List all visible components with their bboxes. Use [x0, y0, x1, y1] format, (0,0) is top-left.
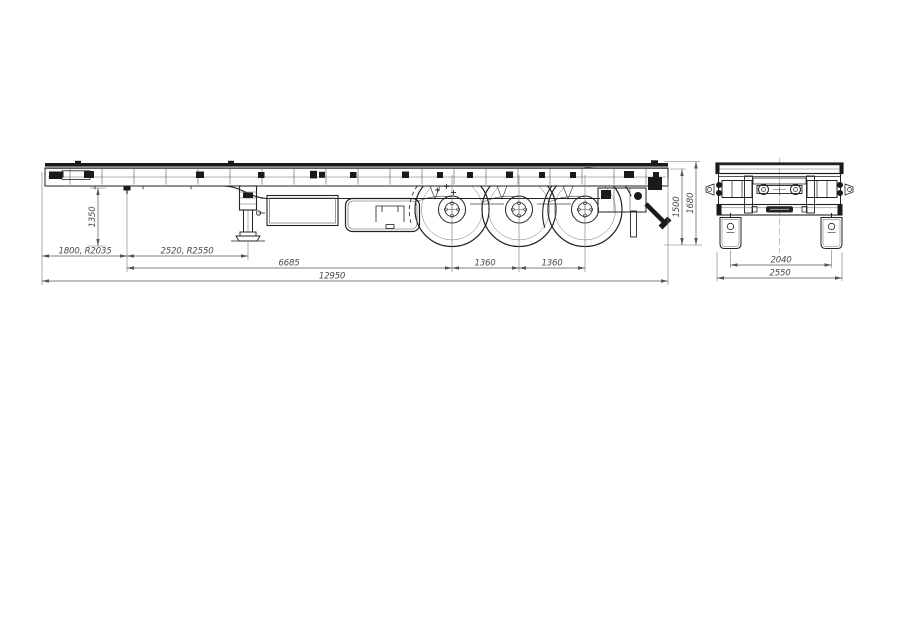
- mudflap-right: [821, 213, 842, 249]
- dimension-label: 1680: [686, 192, 696, 214]
- landing-gear: [231, 186, 265, 241]
- dimension-label: 2550: [769, 269, 791, 279]
- side-view: [45, 160, 670, 246]
- dimension-label: 2040: [770, 256, 792, 266]
- dimension: 6685: [127, 259, 452, 270]
- front-marker: [49, 172, 62, 180]
- drawing-canvas: 1800, R20352520, R2550668513601360129501…: [0, 0, 900, 636]
- dimension-label: 1500: [672, 196, 682, 218]
- mudflap-logo: [828, 223, 834, 229]
- dimension: 1360: [452, 259, 519, 270]
- dimension-label: 12950: [319, 272, 346, 282]
- toolbox-1: [267, 196, 338, 226]
- deck-frame: [45, 160, 668, 198]
- rear-taillight-right: [807, 181, 853, 198]
- dimension: 2520, R2550: [127, 247, 248, 258]
- dimension-label: 1350: [88, 206, 98, 228]
- dimension: 1500: [672, 169, 684, 245]
- underrun-bar: [646, 204, 666, 224]
- dimension-label: 2520, R2550: [161, 247, 215, 257]
- rear-crossbar: [757, 183, 802, 196]
- twist-locks: [75, 160, 658, 163]
- dimension-label: 1360: [474, 259, 496, 269]
- toolbox-2: [346, 199, 420, 232]
- dimension: 1800, R2035: [42, 247, 127, 258]
- mudflap-logo: [727, 223, 733, 229]
- dimension: 1350: [88, 188, 100, 246]
- dimension: 12950: [42, 272, 668, 283]
- dimension: 2550: [717, 269, 842, 280]
- dimension: 1680: [686, 162, 698, 246]
- dimension: 2040: [731, 256, 832, 267]
- dimension: 1360: [519, 259, 585, 270]
- dimension-label: 1800, R2035: [59, 247, 112, 257]
- dimension-label: 1360: [541, 259, 563, 269]
- rear-view: [706, 158, 853, 253]
- taillight: [648, 177, 662, 190]
- trailer-drawing: 1800, R20352520, R2550668513601360129501…: [0, 0, 900, 636]
- dimension-label: 6685: [278, 259, 299, 269]
- rear-taillight-left: [706, 181, 752, 198]
- mudflap-left: [720, 213, 741, 249]
